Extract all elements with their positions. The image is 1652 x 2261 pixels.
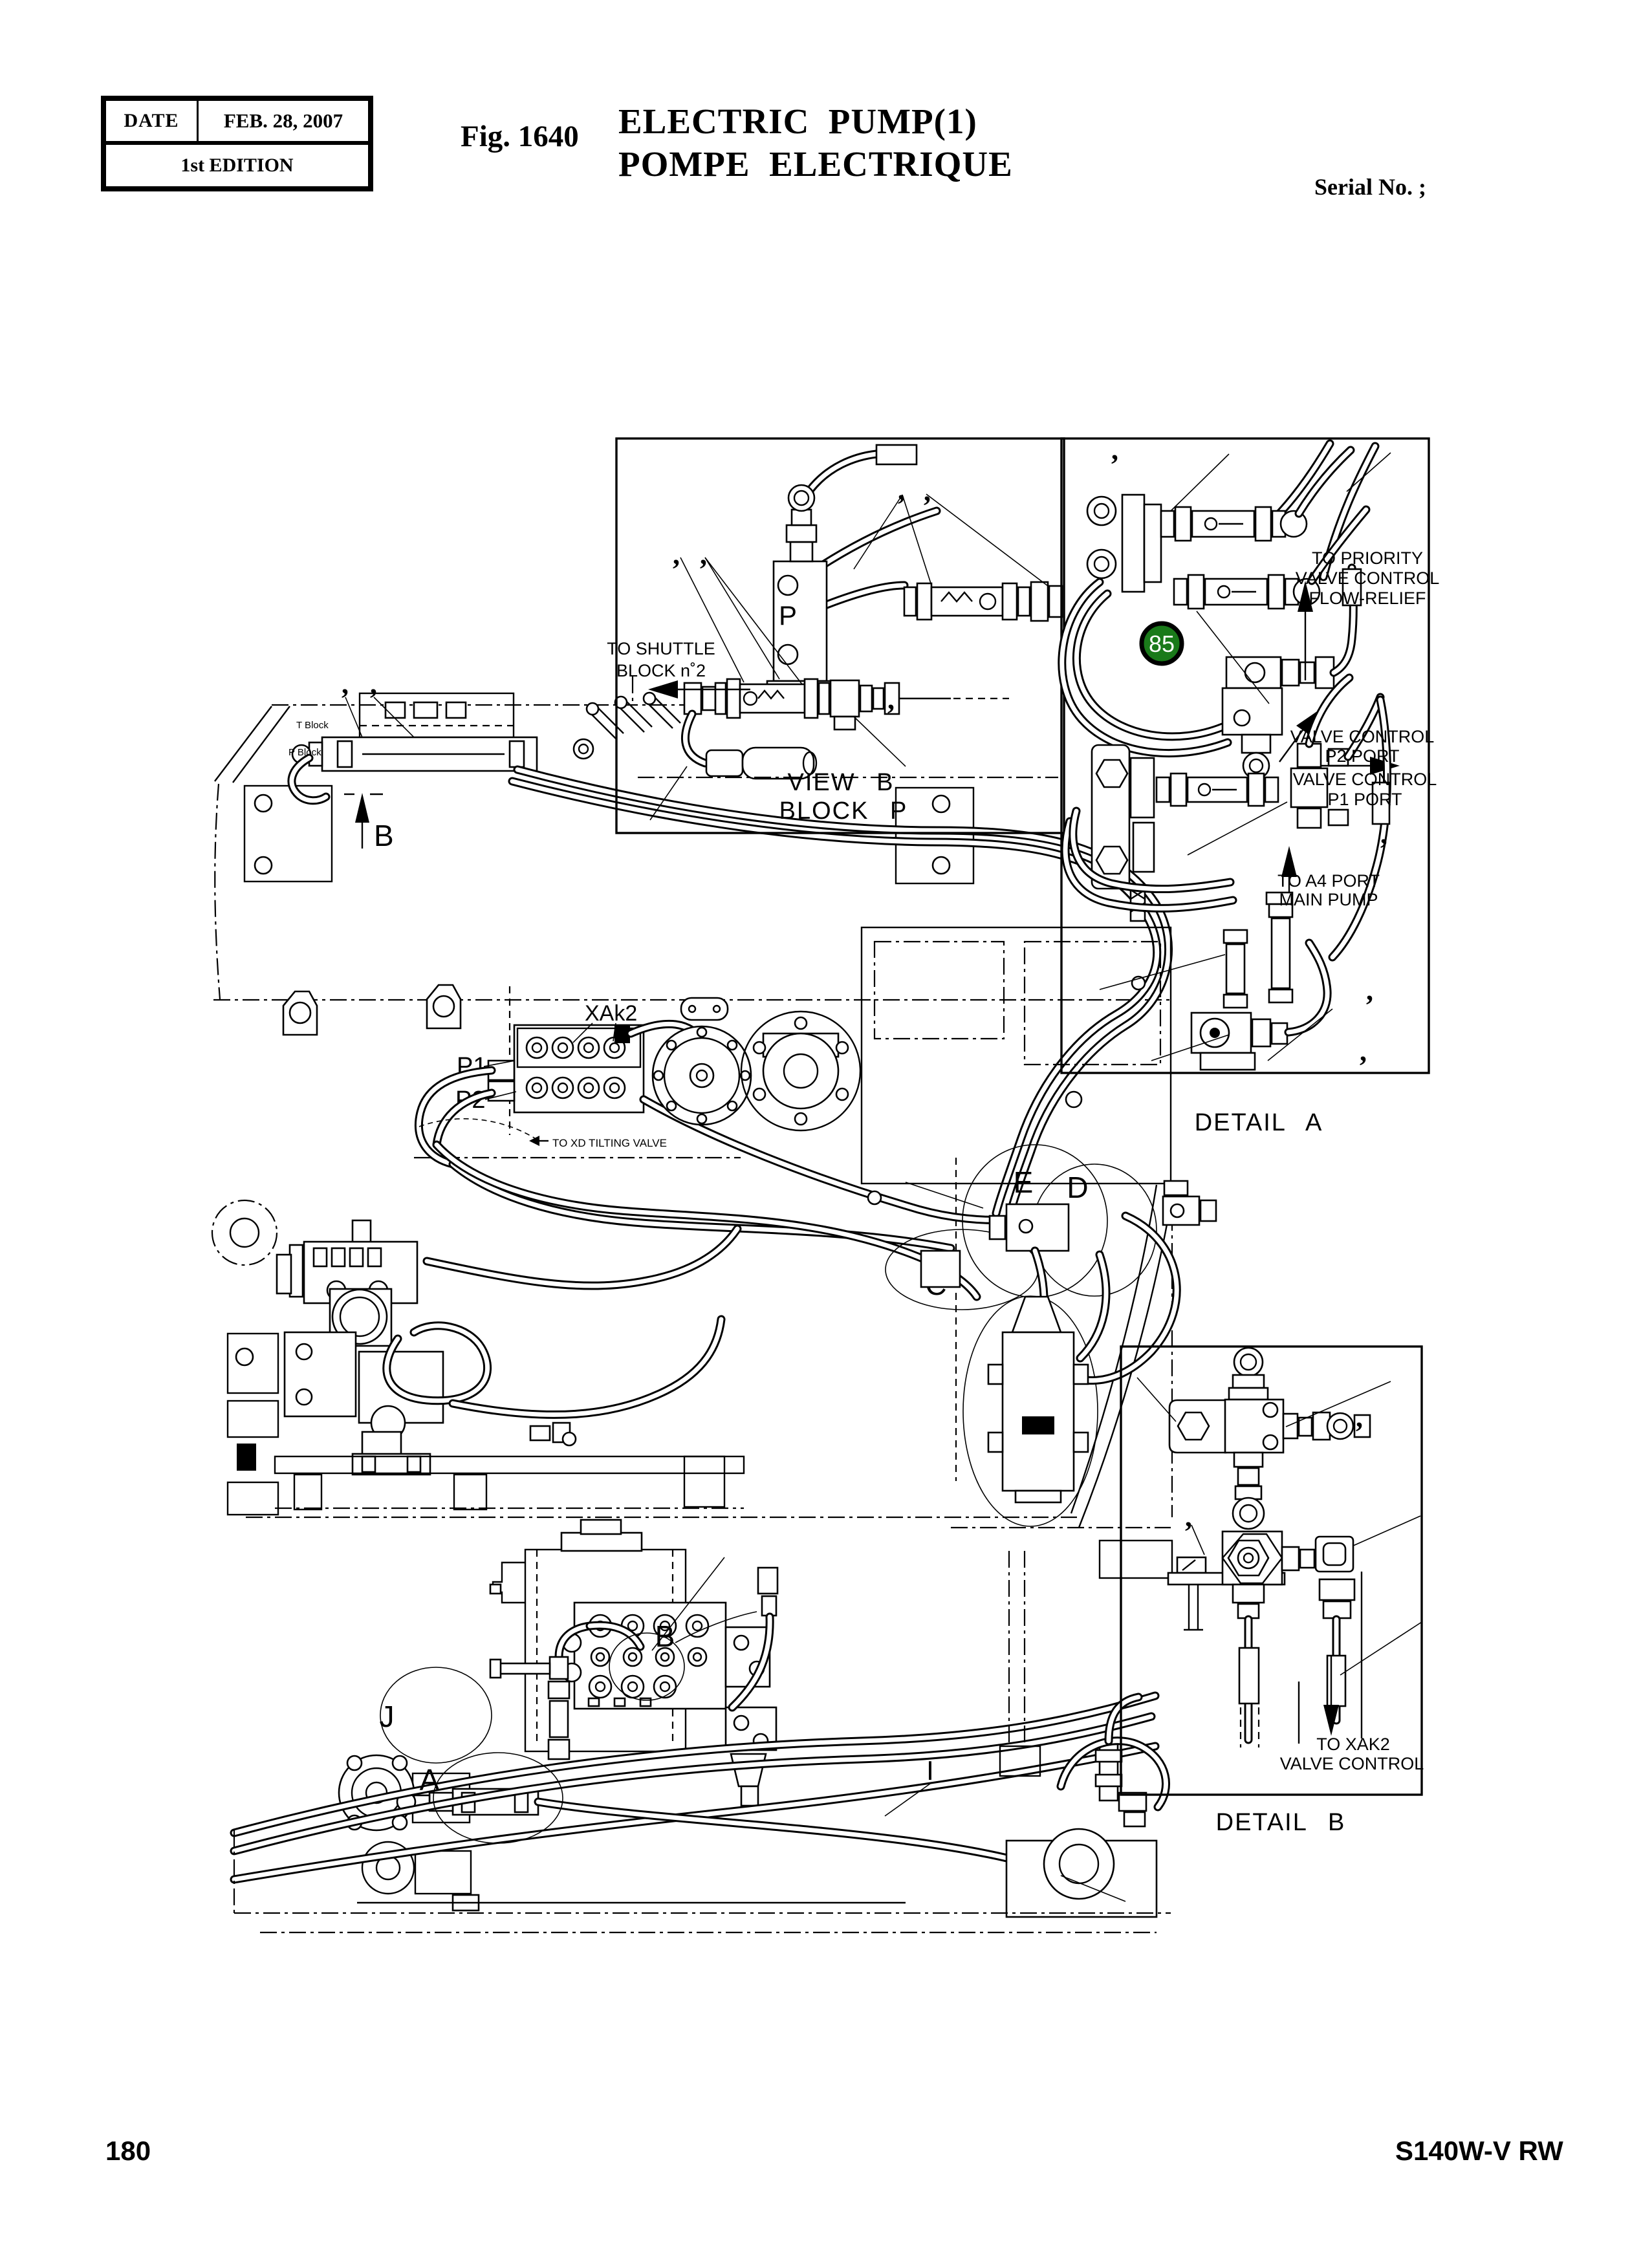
callout-mark: , bbox=[1366, 975, 1373, 1006]
callout-j-label: J bbox=[380, 1700, 395, 1733]
t-block-label: T Block bbox=[296, 720, 329, 731]
p2-note-line1: VALVE CONTROL bbox=[1290, 727, 1435, 746]
p1-note-line1: VALVE CONTROL bbox=[1293, 770, 1437, 789]
callout-mark: , bbox=[1185, 1501, 1192, 1533]
callout-a-label: A bbox=[420, 1763, 440, 1797]
pilot-valve-assembly: T Block P Block , , bbox=[288, 668, 680, 801]
view-b-arrow-label: B bbox=[374, 819, 394, 852]
p1-note-line2: P1 PORT bbox=[1327, 790, 1402, 809]
xak2-note-line1: TO XAK2 bbox=[1316, 1735, 1390, 1754]
priority-note-line3: FLOW-RELIEF bbox=[1309, 589, 1426, 608]
callout-mark: , bbox=[1356, 1401, 1363, 1433]
a4-note-line1: TO A4 PORT bbox=[1277, 871, 1380, 891]
flywheel-coupling bbox=[653, 1011, 860, 1130]
detail-b-caption: DETAIL B bbox=[1216, 1809, 1346, 1836]
p-block-label: P Block bbox=[288, 747, 321, 758]
callout-e-label: E bbox=[1014, 1165, 1034, 1199]
callout-mark: , bbox=[673, 539, 680, 570]
detail-a-caption: DETAIL A bbox=[1195, 1109, 1323, 1136]
callout-mark: , bbox=[1111, 434, 1118, 466]
priority-note-line2: VALVE CONTROL bbox=[1296, 568, 1440, 588]
shuttle-note-line1: TO SHUTTLE bbox=[607, 639, 715, 658]
xak2-note-line2: VALVE CONTROL bbox=[1280, 1754, 1424, 1773]
callout-i-label: I bbox=[926, 1755, 934, 1786]
callout-mark: , bbox=[898, 474, 905, 506]
upper-machine-drawing: T Block P Block , , B bbox=[212, 668, 1216, 1528]
control-valve-block bbox=[563, 1603, 726, 1709]
priority-note-line1: TO PRIORITY bbox=[1312, 548, 1423, 568]
callout-mark: , bbox=[342, 668, 349, 700]
a4-note-line2: MAIN PUMP bbox=[1279, 890, 1378, 909]
port-p-label: P bbox=[779, 600, 797, 631]
callout-mark: , bbox=[924, 475, 931, 507]
callout-mark: , bbox=[887, 684, 895, 715]
callout-mark: , bbox=[700, 539, 707, 570]
lower-machine-drawing: B J A I bbox=[234, 1520, 1172, 1932]
callout-mark: , bbox=[1380, 818, 1387, 850]
xd-tilting-note: TO XD TILTING VALVE bbox=[419, 1119, 667, 1149]
xd-tilting-label: TO XD TILTING VALVE bbox=[552, 1137, 667, 1149]
callout-b-label: B bbox=[655, 1619, 675, 1653]
accumulator bbox=[988, 1297, 1088, 1502]
item-85-badge-number: 85 bbox=[1149, 631, 1175, 657]
manual-page: DATE FEB. 28, 2007 1st EDITION Fig. 1640… bbox=[0, 0, 1652, 2261]
view-b-caption: VIEW B bbox=[787, 769, 894, 796]
shuttle-note-line2: BLOCK n˚2 bbox=[616, 661, 706, 680]
callout-mark: , bbox=[370, 668, 377, 700]
callout-d-label: D bbox=[1067, 1171, 1088, 1204]
callout-mark: , bbox=[1360, 1035, 1367, 1067]
item-85-badge: 85 bbox=[1142, 623, 1182, 664]
view-b-subcaption: BLOCK P bbox=[779, 797, 908, 825]
view-b-arrow: B bbox=[344, 793, 394, 852]
view-b-panel: , , , , , TO SHUTTLE BLOCK n˚2 P VIEW B … bbox=[607, 438, 1064, 833]
figure-svg: T Block P Block , , B bbox=[0, 0, 1652, 2261]
detail-b-panel: TO XAK2 VALVE CONTROL , , DETAIL B bbox=[1121, 1347, 1424, 1836]
xak2-label: XAk2 bbox=[585, 1001, 637, 1026]
p2-note-line2: P2 PORT bbox=[1325, 746, 1399, 766]
